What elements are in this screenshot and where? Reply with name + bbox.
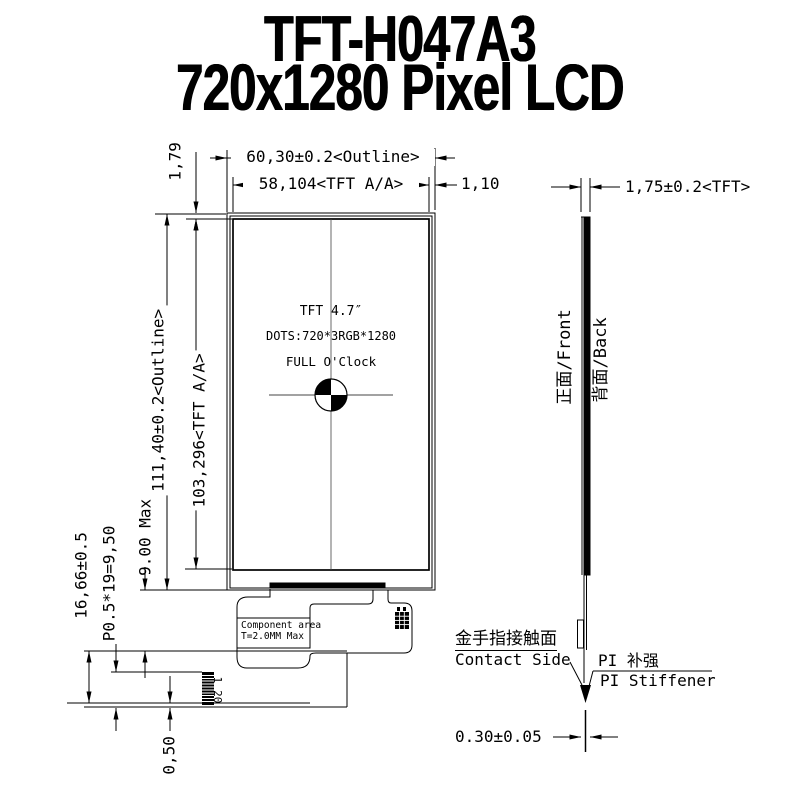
gold-finger-contact [578, 620, 584, 648]
bonding-strip [270, 583, 385, 588]
component-area-line2: T=2.0MM Max [241, 632, 304, 642]
contact-leader-arrow [580, 685, 591, 703]
dim-fpc-thickness: 0.30±0.05 [455, 729, 542, 746]
dim-active-area-height: 103,296<TFT A/A> [192, 350, 209, 510]
dim-outline-width: 60,30±0.2<Outline> [231, 149, 435, 166]
dim-active-area-width: 58,104<TFT A/A> [243, 176, 419, 193]
label-pi-stiffener-cn: PI 补强 [598, 653, 659, 670]
dim-connector-pitch: P0.5*19=9,50 [102, 523, 119, 643]
dim-tail-thickness: 0,50 [162, 731, 179, 779]
drawing-title-resolution: 720x1280 Pixel LCD [88, 56, 712, 121]
center-mark [269, 379, 393, 411]
label-back-side: 背面/Back [593, 290, 611, 430]
glass-section [584, 217, 590, 575]
label-contact-side-cn: 金手指接触面 [455, 631, 557, 651]
panel-label-viewing: FULL O'Clock [211, 355, 451, 368]
label-contact-side-en: Contact Side [455, 652, 571, 669]
dim-top-border: 1,79 [168, 139, 185, 183]
dim-right-border: 1,10 [461, 176, 500, 193]
label-front-side: 正面/Front [557, 282, 575, 432]
pin-number-last: 20 [211, 687, 223, 707]
label-pi-stiffener-en: PI Stiffener [600, 673, 716, 690]
dim-fpc-length: 16,66±0.5 [74, 527, 91, 623]
dim-component-height: 9.00 Max [138, 495, 155, 579]
panel-label-size: TFT 4.7″ [211, 305, 451, 319]
dim-tft-thickness: 1,75±0.2<TFT> [625, 179, 750, 196]
fpc-flex-cable [67, 583, 412, 707]
component-area-line1: Component area [241, 621, 321, 631]
driver-ic [395, 607, 409, 629]
tft-lcd-drawing-sheet: { "title": { "line1": "TFT-H047A3", "lin… [0, 0, 800, 800]
panel-label-dots: DOTS:720*3RGB*1280 [211, 330, 451, 343]
dim-outline-height: 111,40±0.2<Outline> [151, 305, 168, 495]
